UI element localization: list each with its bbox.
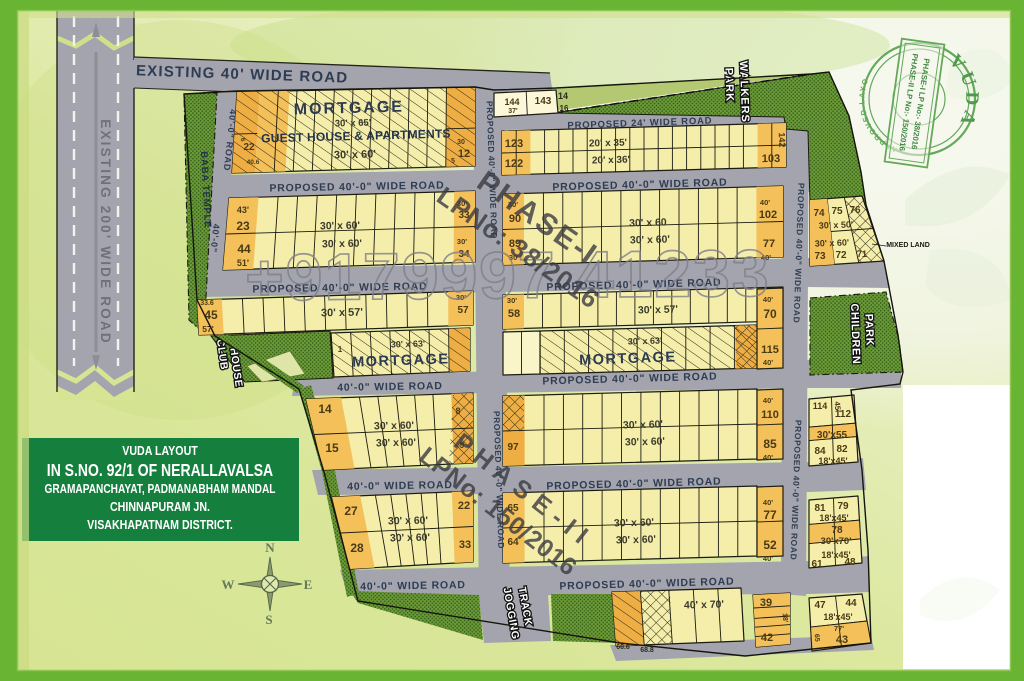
svg-text:37': 37': [508, 108, 518, 115]
svg-text:40': 40': [763, 554, 773, 563]
svg-text:30' x 60': 30' x 60': [376, 437, 416, 450]
svg-text:W: W: [222, 577, 235, 592]
svg-text:43': 43': [237, 205, 249, 215]
svg-text:22: 22: [243, 142, 255, 153]
svg-text:CHINNAPURAM JN.: CHINNAPURAM JN.: [110, 499, 210, 514]
svg-text:40': 40': [760, 198, 770, 207]
svg-text:MORTGAGE: MORTGAGE: [579, 349, 677, 368]
svg-text:20' x 35': 20' x 35': [589, 138, 627, 150]
svg-text:33.6: 33.6: [200, 300, 214, 307]
svg-text:115: 115: [761, 344, 779, 356]
svg-text:143: 143: [535, 96, 552, 107]
svg-text:75: 75: [831, 206, 843, 217]
svg-text:30' x 60': 30' x 60': [388, 515, 428, 528]
svg-text:18'x45': 18'x45': [819, 513, 848, 523]
svg-text:77': 77': [834, 624, 844, 633]
svg-text:1: 1: [338, 345, 343, 354]
svg-text:47: 47: [814, 600, 826, 611]
svg-text:30' x 60': 30' x 60': [334, 148, 377, 161]
svg-text:IN S.NO. 92/1 OF NERALLAVALSA: IN S.NO. 92/1 OF NERALLAVALSA: [47, 462, 274, 481]
svg-text:VUDA LAYOUT: VUDA LAYOUT: [122, 443, 198, 458]
svg-text:23: 23: [236, 219, 250, 233]
svg-text:14: 14: [318, 402, 332, 416]
svg-text:40' x 70': 40' x 70': [684, 598, 724, 611]
svg-text:40'-0" WIDE ROAD: 40'-0" WIDE ROAD: [360, 579, 466, 593]
svg-text:122: 122: [505, 158, 524, 170]
svg-text:76: 76: [849, 205, 861, 216]
svg-text:16: 16: [560, 104, 569, 113]
svg-text:5: 5: [451, 158, 455, 165]
svg-text:43: 43: [836, 634, 848, 646]
svg-text:20' x 36': 20' x 36': [592, 155, 630, 167]
svg-text:30' x 60': 30' x 60': [390, 532, 430, 545]
svg-text:30' x 50': 30' x 50': [819, 219, 854, 230]
svg-text:72: 72: [835, 250, 847, 261]
svg-text:30' x 63': 30' x 63': [391, 339, 426, 350]
svg-text:N: N: [265, 540, 275, 555]
svg-text:66.6: 66.6: [616, 644, 630, 651]
svg-text:VISAKHAPATNAM DISTRICT.: VISAKHAPATNAM DISTRICT.: [87, 517, 233, 532]
svg-text:52: 52: [763, 538, 777, 552]
svg-text:33: 33: [459, 539, 471, 551]
svg-text:78: 78: [831, 525, 843, 536]
svg-text:71: 71: [857, 249, 867, 259]
svg-text:30' x 60': 30' x 60': [616, 533, 656, 546]
svg-text:48: 48: [844, 557, 856, 568]
svg-text:GRAMAPANCHAYAT, PADMANABHAM MA: GRAMAPANCHAYAT, PADMANABHAM MANDAL: [45, 482, 276, 496]
svg-text:30' x 60': 30' x 60': [614, 516, 654, 529]
svg-text:PARK: PARK: [722, 68, 735, 103]
svg-text:18'x45': 18'x45': [818, 456, 847, 466]
svg-text:114: 114: [813, 401, 828, 411]
svg-text:18'x45': 18'x45': [823, 612, 852, 622]
svg-text:40': 40': [763, 453, 773, 462]
svg-text:E: E: [304, 577, 313, 592]
svg-text:12: 12: [458, 148, 470, 160]
svg-text:73: 73: [814, 251, 826, 262]
svg-text:142: 142: [777, 132, 788, 147]
svg-text:30: 30: [457, 139, 465, 146]
svg-text:PARK: PARK: [862, 314, 875, 347]
svg-text:27: 27: [344, 504, 358, 518]
svg-text:61: 61: [811, 559, 823, 570]
svg-text:40': 40': [763, 358, 773, 367]
svg-text:30' x 63': 30' x 63': [628, 336, 663, 347]
svg-text:30' x 60': 30' x 60': [625, 435, 665, 448]
svg-text:82: 82: [836, 444, 848, 455]
svg-text:30' x 60': 30' x 60': [374, 420, 414, 433]
svg-text:15: 15: [325, 441, 339, 455]
svg-text:42: 42: [761, 632, 773, 644]
svg-text:103: 103: [762, 153, 781, 165]
svg-text:30'x70': 30'x70': [821, 536, 852, 547]
svg-text:MIXED LAND: MIXED LAND: [886, 242, 930, 249]
svg-text:40': 40': [763, 498, 773, 507]
svg-text:30' x 60: 30' x 60: [629, 217, 667, 230]
svg-text:85: 85: [763, 437, 777, 451]
svg-text:8: 8: [455, 406, 460, 416]
svg-text:65: 65: [813, 634, 821, 642]
svg-text:40.6: 40.6: [247, 159, 260, 166]
svg-text:79: 79: [837, 501, 849, 512]
svg-text:44: 44: [845, 598, 857, 609]
svg-text:MORTGAGE: MORTGAGE: [294, 99, 405, 119]
svg-text:28: 28: [350, 541, 364, 555]
svg-text:112: 112: [835, 409, 852, 420]
svg-text:MORTGAGE: MORTGAGE: [352, 351, 450, 370]
svg-text:S: S: [265, 612, 272, 627]
svg-text:30' x 65': 30' x 65': [335, 118, 371, 130]
svg-text:144: 144: [504, 97, 519, 107]
svg-text:97: 97: [507, 442, 519, 453]
svg-text:18': 18': [781, 613, 789, 623]
svg-text:30' x 60': 30' x 60': [320, 220, 360, 233]
svg-text:77: 77: [763, 508, 777, 522]
svg-text:123: 123: [505, 138, 524, 150]
svg-text:30' x 60': 30' x 60': [815, 237, 850, 248]
svg-text:39: 39: [760, 597, 772, 609]
svg-text:30'x55: 30'x55: [817, 430, 848, 441]
svg-text:40': 40': [763, 396, 773, 405]
svg-text:74: 74: [813, 208, 825, 219]
svg-text:110: 110: [761, 409, 779, 421]
svg-text:EXISTING 200' WIDE ROAD: EXISTING 200' WIDE ROAD: [98, 119, 113, 345]
svg-text:30' x 60': 30' x 60': [623, 418, 663, 431]
svg-text:102: 102: [759, 209, 777, 221]
svg-text:CHILDREN: CHILDREN: [848, 303, 862, 364]
svg-text:14: 14: [558, 91, 568, 101]
svg-text:WALKERS: WALKERS: [737, 61, 751, 123]
svg-text:68.8: 68.8: [640, 647, 654, 654]
svg-text:40'-0" WIDE ROAD: 40'-0" WIDE ROAD: [337, 380, 443, 394]
